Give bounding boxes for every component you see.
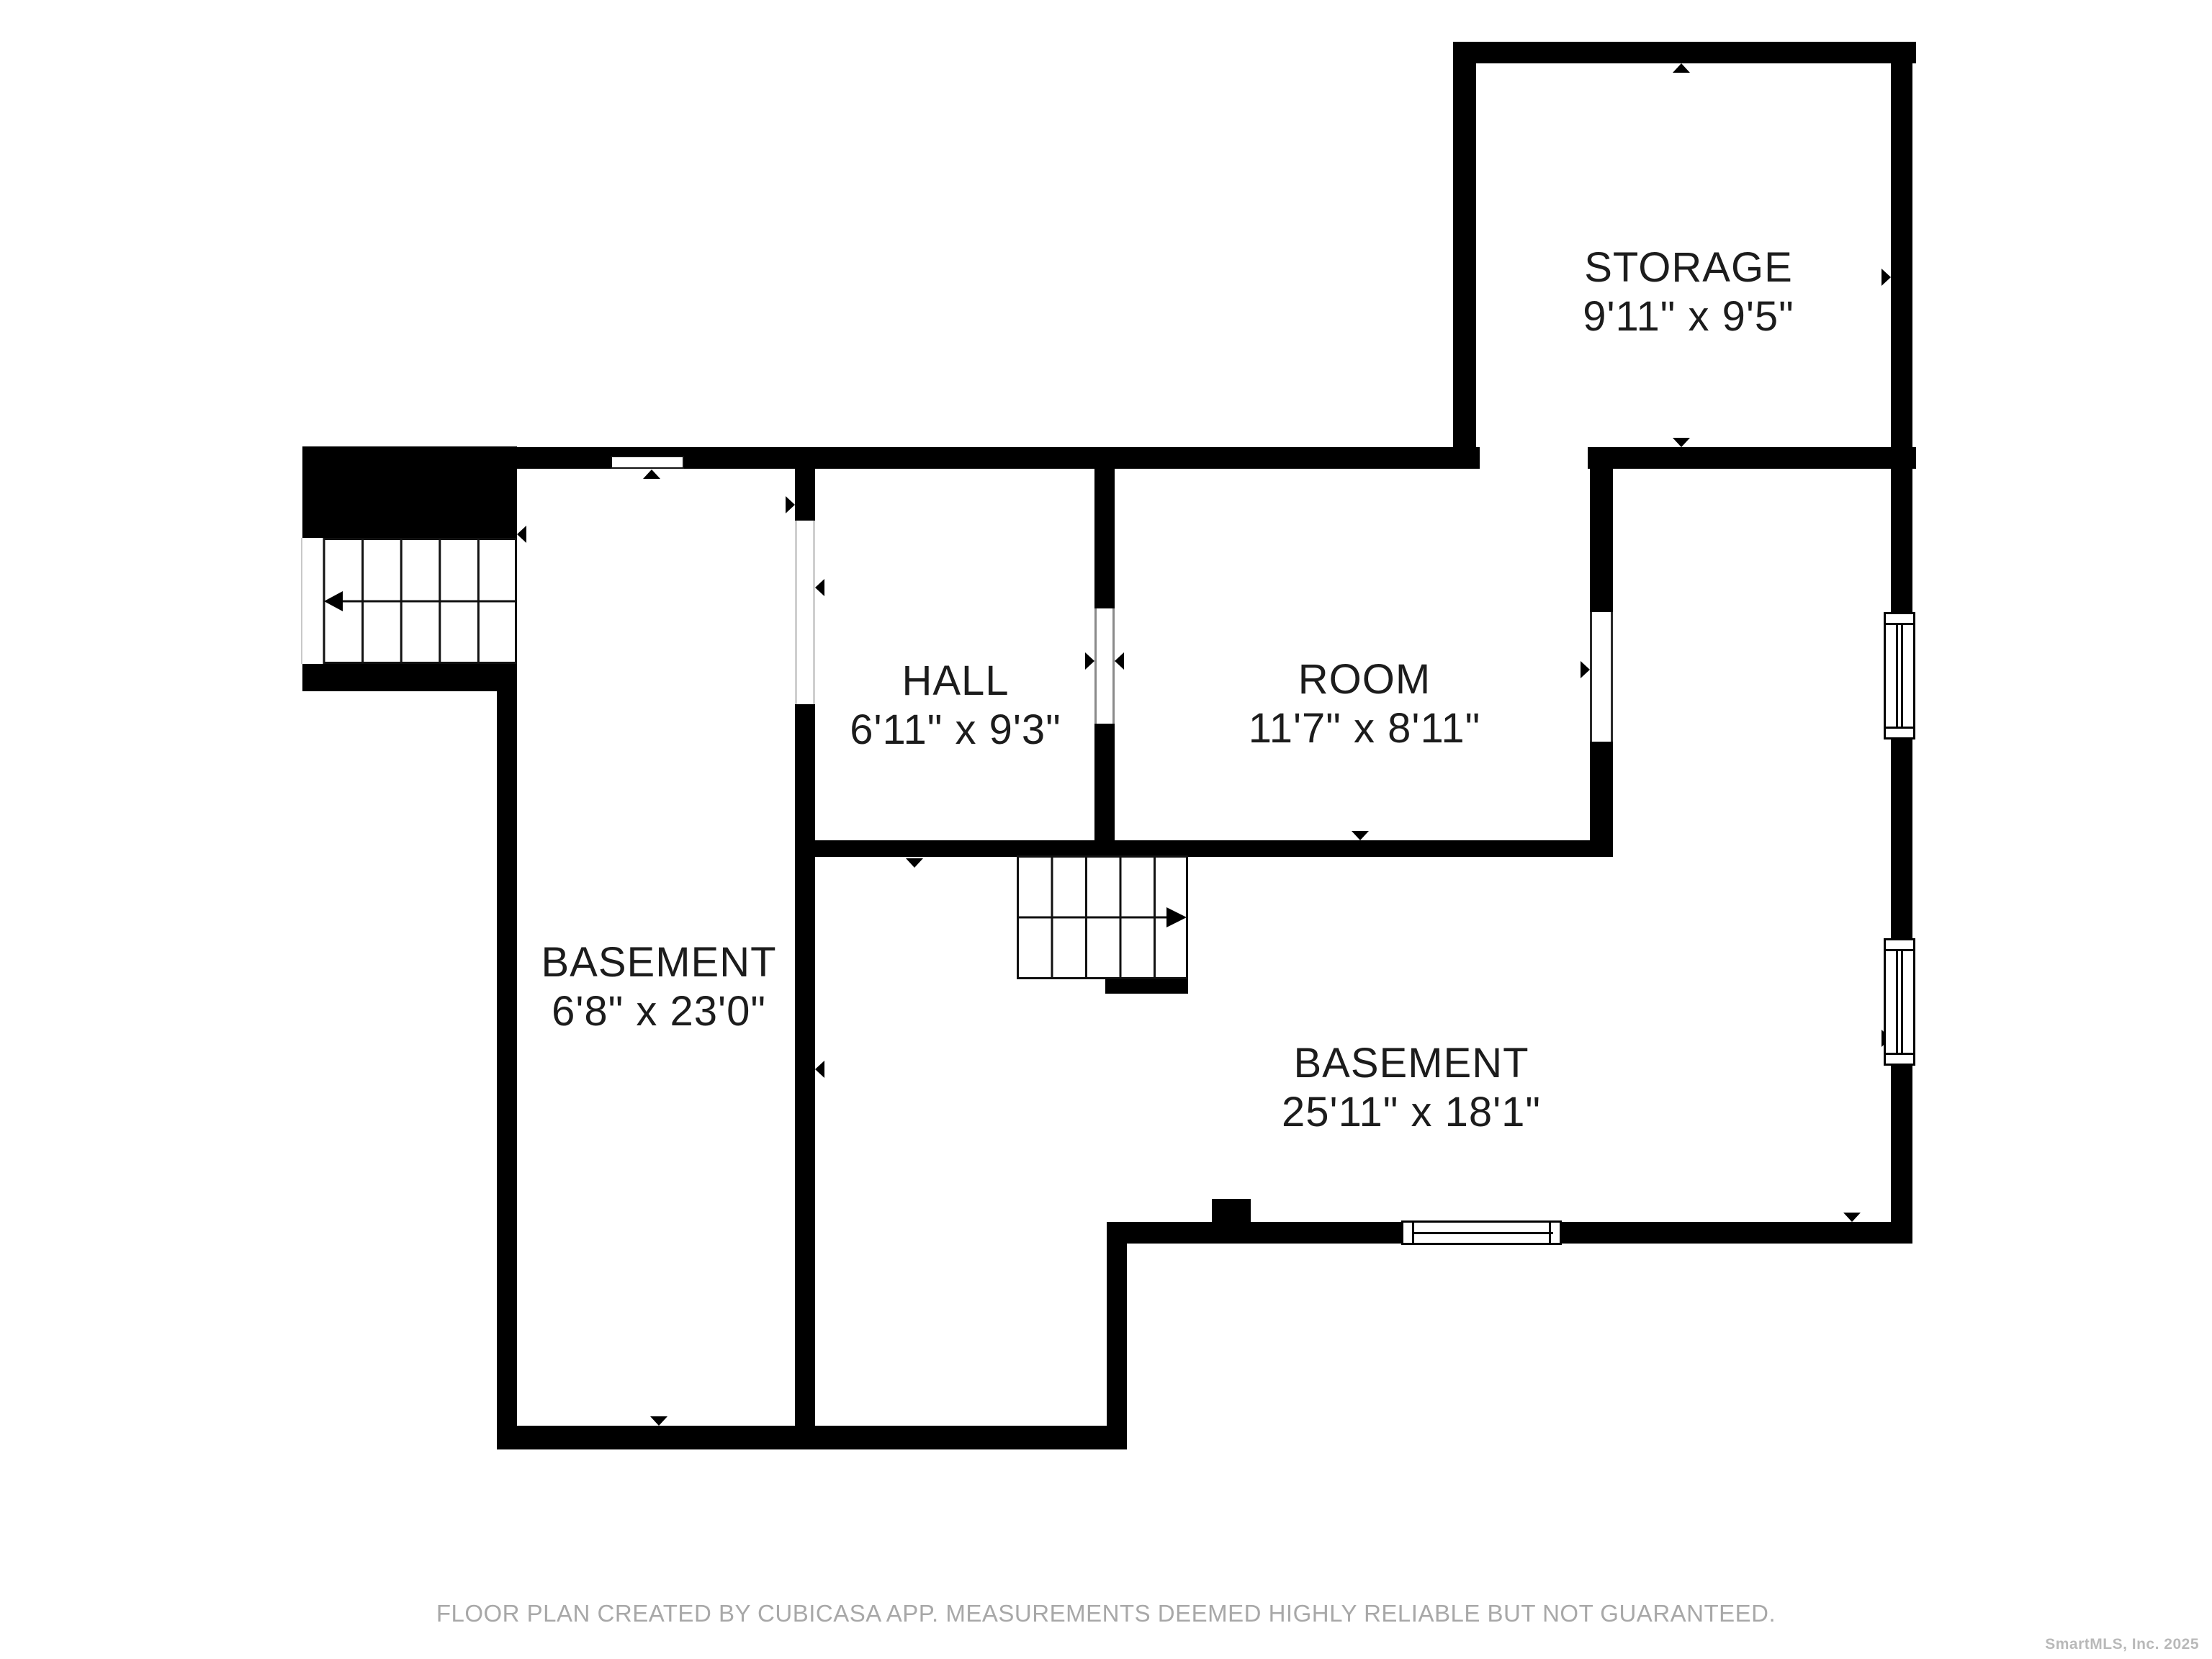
room-label-basement-small: BASEMENT 6'8" x 23'0" [541, 938, 776, 1036]
wall-segment [302, 664, 498, 691]
staircase-middle-icon [1017, 855, 1188, 979]
wall-segment [1094, 447, 1115, 608]
door-opening-line [813, 521, 815, 704]
window-sill [1886, 1053, 1913, 1055]
wall-segment [1107, 1222, 1403, 1244]
room-dimensions: 9'11" x 9'5" [1583, 292, 1794, 341]
wall-segment [497, 1426, 1127, 1449]
window-pane-line [1896, 951, 1898, 1053]
room-name: ROOM [1249, 655, 1480, 704]
wall-segment [1212, 1199, 1251, 1222]
room-name: HALL [850, 657, 1061, 706]
top-window-arrow-icon [643, 469, 660, 479]
room-dimensions: 6'8" x 23'0" [541, 987, 776, 1036]
storage-right-arrow-icon [1881, 269, 1891, 286]
wall-segment [611, 447, 684, 456]
hall-room-door-arrow-icon [1085, 652, 1094, 670]
wall-segment [1891, 739, 1912, 940]
wall-segment [1453, 42, 1476, 469]
wall-segment [497, 664, 517, 1449]
wall-segment [1891, 42, 1912, 613]
window-right-upper [1884, 612, 1915, 739]
room-label-hall: HALL 6'11" x 9'3" [850, 657, 1061, 755]
window-right-lower [1884, 938, 1915, 1066]
room-dimensions: 6'11" x 9'3" [850, 706, 1061, 755]
basement-divider-arrow-icon [815, 1061, 824, 1078]
hall-room-door-arrow-icon [1115, 652, 1124, 670]
window-top-wall [611, 456, 684, 469]
wall-segment [1590, 447, 1613, 612]
window-sill [1886, 623, 1913, 625]
wall-segment [795, 840, 1613, 857]
staircase-upper-left-icon [302, 538, 517, 664]
hall-left-door-arrow-icon [786, 496, 795, 513]
room-name: BASEMENT [1282, 1039, 1541, 1088]
wall-segment [1453, 42, 1916, 63]
room-label-storage: STORAGE 9'11" x 9'5" [1583, 243, 1794, 341]
window-sill [1886, 727, 1913, 729]
stairs-top-arrow-icon [517, 526, 526, 543]
room-bottom-arrow-icon [1352, 831, 1369, 840]
window-sill [1886, 949, 1913, 951]
room-right-door-arrow-icon [1581, 661, 1590, 678]
hall-bottom-arrow-icon [906, 858, 923, 868]
door-opening-line [795, 521, 797, 704]
room-dimensions: 11'7" x 8'11" [1249, 704, 1480, 753]
room-name: STORAGE [1583, 243, 1794, 292]
stair-direction-arrow-icon [1166, 907, 1187, 927]
room-label-room: ROOM 11'7" x 8'11" [1249, 655, 1480, 753]
bottom-left-wall-arrow-icon [650, 1416, 667, 1426]
wall-segment [1590, 742, 1613, 857]
wall-segment [1094, 724, 1115, 857]
wall-segment [795, 447, 815, 521]
window-bottom-wall [1401, 1220, 1562, 1245]
door-opening-line [1590, 612, 1592, 742]
door-opening-line [1611, 612, 1613, 742]
wall-segment [1588, 447, 1916, 469]
wall-segment [1891, 1064, 1912, 1244]
footer-disclaimer: FLOOR PLAN CREATED BY CUBICASA APP. MEAS… [0, 1600, 2212, 1627]
hall-left-door-arrow-icon [815, 579, 824, 596]
wall-segment [302, 446, 517, 538]
storage-top-arrow-icon [1673, 63, 1690, 73]
window-pane-line [1896, 625, 1898, 727]
wall-segment [1105, 979, 1188, 994]
room-name: BASEMENT [541, 938, 776, 987]
wall-segment [1560, 1222, 1912, 1244]
wall-segment [1107, 1222, 1127, 1449]
storage-bottom-arrow-icon [1673, 438, 1690, 447]
floor-plan: STORAGE 9'11" x 9'5" HALL 6'11" x 9'3" R… [0, 0, 2212, 1659]
watermark: SmartMLS, Inc. 2025 [2045, 1636, 2199, 1653]
bottom-wall-arrow-icon [1843, 1213, 1861, 1222]
window-pane-line [1414, 1232, 1553, 1234]
door-opening-line [1094, 608, 1097, 724]
window-pane-line [1901, 951, 1903, 1053]
wall-segment [795, 704, 815, 1449]
room-label-basement-large: BASEMENT 25'11" x 18'1" [1282, 1039, 1541, 1137]
window-pane-line [1901, 625, 1903, 727]
room-dimensions: 25'11" x 18'1" [1282, 1088, 1541, 1137]
stair-direction-arrow-icon [324, 591, 343, 611]
